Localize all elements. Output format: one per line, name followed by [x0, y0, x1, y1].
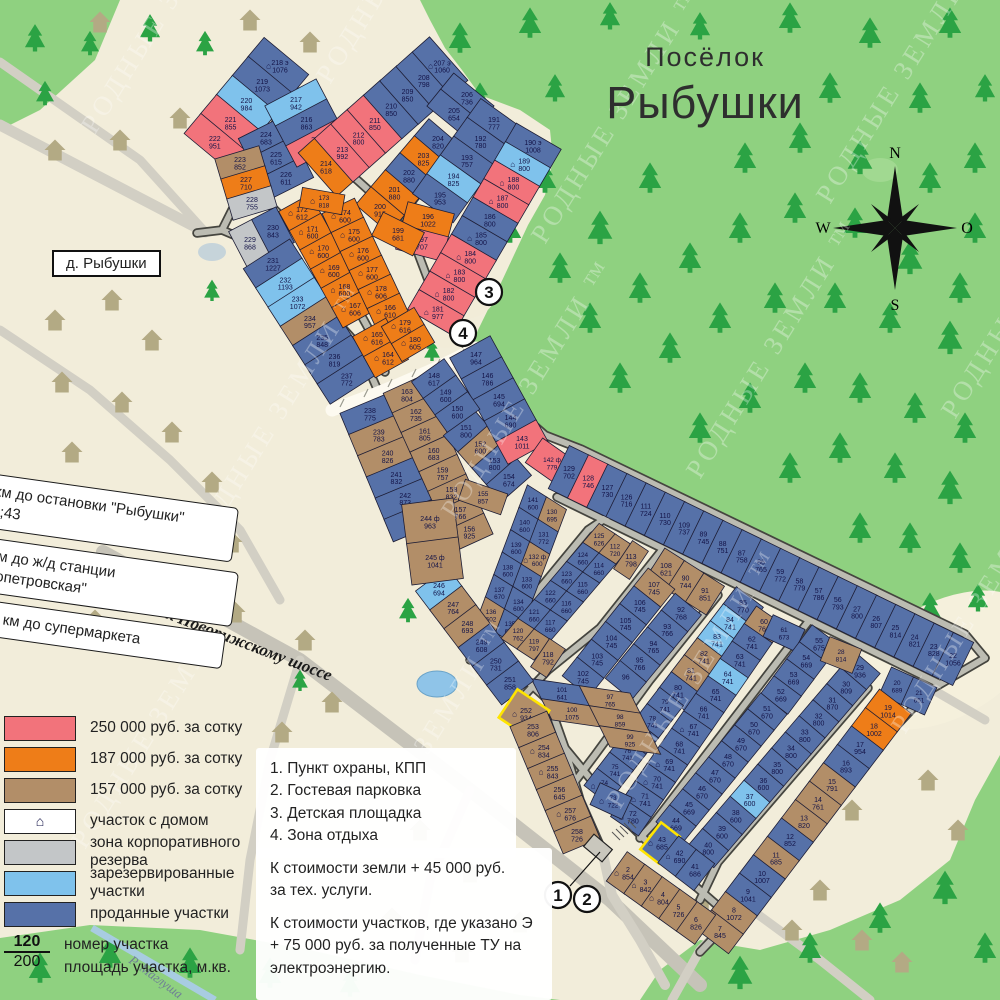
- svg-text:97: 97: [606, 694, 614, 701]
- svg-text:850: 850: [385, 111, 397, 118]
- svg-text:⌂: ⌂: [320, 266, 325, 275]
- svg-text:675: 675: [813, 645, 825, 652]
- svg-text:196: 196: [422, 214, 434, 221]
- svg-text:126: 126: [621, 494, 633, 501]
- svg-text:⌂: ⌂: [591, 782, 596, 791]
- svg-text:161: 161: [419, 428, 431, 435]
- plot-area-sample: 200: [4, 953, 50, 971]
- title-line1: Посёлок: [555, 42, 855, 73]
- svg-text:94: 94: [650, 641, 658, 648]
- svg-text:180: 180: [409, 337, 421, 344]
- svg-text:51: 51: [763, 706, 771, 713]
- svg-text:814: 814: [836, 656, 847, 663]
- svg-text:69: 69: [665, 759, 673, 766]
- svg-text:116: 116: [561, 601, 572, 608]
- svg-text:3: 3: [644, 880, 648, 887]
- svg-text:⌂: ⌂: [489, 197, 494, 206]
- svg-text:⌂: ⌂: [310, 197, 315, 206]
- svg-text:251: 251: [504, 677, 516, 684]
- svg-text:984: 984: [241, 105, 253, 112]
- svg-text:605: 605: [409, 344, 421, 351]
- svg-text:843: 843: [547, 773, 559, 780]
- svg-text:745: 745: [606, 643, 618, 650]
- svg-text:800: 800: [454, 277, 466, 284]
- svg-text:852: 852: [234, 164, 246, 171]
- svg-text:716: 716: [621, 501, 633, 508]
- svg-text:669: 669: [788, 679, 800, 686]
- svg-text:⌂: ⌂: [530, 747, 535, 756]
- poi-item-4: 4. Зона отдыха: [270, 825, 502, 847]
- svg-text:⌂: ⌂: [374, 354, 379, 363]
- svg-text:33: 33: [801, 730, 809, 737]
- svg-text:731: 731: [490, 666, 502, 673]
- village-label: д. Рыбушки: [52, 250, 161, 277]
- svg-text:757: 757: [461, 162, 473, 169]
- svg-text:954: 954: [854, 749, 866, 756]
- svg-text:219: 219: [256, 79, 268, 86]
- svg-text:600: 600: [440, 397, 452, 404]
- svg-text:606: 606: [375, 293, 387, 300]
- svg-text:1076: 1076: [272, 67, 288, 74]
- svg-text:⌂: ⌂: [428, 62, 433, 71]
- svg-text:660: 660: [561, 578, 572, 585]
- svg-text:670: 670: [494, 594, 505, 601]
- svg-text:60: 60: [760, 619, 768, 626]
- svg-text:741: 741: [688, 731, 700, 738]
- svg-text:148: 148: [428, 373, 440, 380]
- svg-text:6: 6: [694, 917, 698, 924]
- svg-text:674: 674: [503, 481, 515, 488]
- svg-text:600: 600: [744, 801, 756, 808]
- svg-text:108: 108: [660, 563, 672, 570]
- legend-swatch: [4, 840, 76, 865]
- svg-text:204: 204: [432, 136, 444, 143]
- svg-text:745: 745: [648, 589, 660, 596]
- svg-text:213: 213: [336, 147, 348, 154]
- svg-text:247: 247: [447, 602, 459, 609]
- svg-text:690: 690: [674, 858, 686, 865]
- svg-text:165: 165: [371, 332, 383, 339]
- svg-text:751: 751: [717, 548, 729, 555]
- svg-text:209: 209: [402, 89, 414, 96]
- svg-text:169: 169: [328, 265, 340, 272]
- svg-text:741: 741: [673, 749, 685, 756]
- svg-text:131: 131: [538, 532, 549, 539]
- svg-text:14: 14: [814, 797, 822, 804]
- svg-text:617: 617: [428, 380, 440, 387]
- svg-text:226: 226: [280, 172, 292, 179]
- svg-text:1072: 1072: [726, 915, 742, 922]
- legend-item-5: зона корпоративного резерва: [4, 840, 254, 864]
- svg-text:88: 88: [719, 541, 727, 548]
- svg-text:⌂: ⌂: [648, 839, 653, 848]
- svg-text:228: 228: [246, 197, 258, 204]
- svg-text:134: 134: [513, 599, 524, 606]
- svg-text:30: 30: [842, 681, 850, 688]
- svg-text:⌂: ⌂: [456, 253, 461, 262]
- svg-text:670: 670: [761, 713, 773, 720]
- svg-text:⌂: ⌂: [401, 339, 406, 348]
- svg-text:128: 128: [582, 476, 594, 483]
- legend-label: 157 000 руб. за сотку: [90, 781, 242, 799]
- svg-text:252: 252: [520, 708, 532, 715]
- svg-text:⌂: ⌂: [266, 62, 271, 71]
- svg-text:185: 185: [475, 233, 487, 240]
- svg-text:240: 240: [382, 451, 394, 458]
- svg-text:187: 187: [497, 196, 509, 203]
- svg-text:233: 233: [292, 297, 304, 304]
- svg-text:32: 32: [815, 714, 823, 721]
- svg-text:857: 857: [478, 498, 489, 505]
- svg-text:⌂: ⌂: [288, 209, 293, 218]
- svg-text:27: 27: [853, 606, 861, 613]
- svg-text:139: 139: [511, 542, 522, 549]
- svg-text:62: 62: [748, 637, 756, 644]
- svg-text:645: 645: [554, 794, 566, 801]
- svg-text:68: 68: [675, 741, 683, 748]
- svg-text:805: 805: [419, 436, 431, 443]
- svg-text:248: 248: [462, 621, 474, 628]
- svg-text:43: 43: [658, 837, 666, 844]
- svg-text:850: 850: [402, 96, 414, 103]
- svg-text:28: 28: [837, 649, 845, 656]
- svg-text:766: 766: [634, 665, 646, 672]
- svg-text:192: 192: [475, 136, 487, 143]
- svg-text:736: 736: [461, 99, 473, 106]
- svg-text:238: 238: [364, 408, 376, 415]
- svg-text:783: 783: [373, 437, 385, 444]
- svg-text:231: 231: [267, 258, 279, 265]
- legend-swatch: [4, 778, 76, 803]
- svg-text:50: 50: [750, 722, 758, 729]
- svg-text:163: 163: [401, 389, 413, 396]
- svg-text:141: 141: [528, 497, 539, 504]
- legend-item-2: 187 000 руб. за сотку: [4, 747, 254, 771]
- svg-text:⌂: ⌂: [556, 810, 561, 819]
- svg-text:1193: 1193: [278, 285, 293, 292]
- svg-text:225: 225: [270, 152, 282, 159]
- svg-text:⌂: ⌂: [299, 228, 304, 237]
- legend-item-7: проданные участки: [4, 902, 254, 926]
- svg-text:600: 600: [452, 413, 464, 420]
- svg-text:239: 239: [373, 429, 385, 436]
- svg-text:745: 745: [591, 661, 603, 668]
- svg-text:137: 137: [494, 587, 505, 594]
- svg-text:92: 92: [677, 607, 685, 614]
- svg-text:191: 191: [488, 117, 500, 124]
- svg-text:57: 57: [815, 588, 823, 595]
- svg-text:5: 5: [677, 905, 681, 912]
- svg-text:224: 224: [260, 132, 272, 139]
- svg-text:1022: 1022: [420, 221, 436, 228]
- svg-text:175: 175: [348, 229, 360, 236]
- svg-text:127: 127: [602, 485, 614, 492]
- svg-text:600: 600: [730, 817, 742, 824]
- svg-text:117: 117: [545, 620, 556, 627]
- svg-text:151: 151: [460, 425, 472, 432]
- svg-text:181: 181: [432, 307, 444, 314]
- svg-text:24: 24: [911, 635, 919, 642]
- svg-text:54: 54: [802, 655, 810, 662]
- svg-text:977: 977: [432, 314, 444, 321]
- svg-text:46: 46: [698, 786, 706, 793]
- svg-text:764: 764: [447, 609, 459, 616]
- svg-text:600: 600: [519, 527, 530, 534]
- svg-text:825: 825: [418, 160, 430, 167]
- svg-text:800: 800: [771, 769, 783, 776]
- svg-text:111: 111: [640, 504, 651, 511]
- svg-text:216: 216: [301, 117, 313, 124]
- svg-text:234: 234: [304, 316, 316, 323]
- svg-text:156: 156: [463, 526, 475, 533]
- svg-text:689: 689: [892, 687, 903, 694]
- svg-text:63: 63: [736, 654, 744, 661]
- svg-text:670: 670: [722, 761, 734, 768]
- svg-text:118: 118: [542, 652, 553, 659]
- poi-item-3: 3. Детская площадка: [270, 803, 502, 825]
- svg-text:⌂: ⌂: [435, 290, 440, 299]
- svg-text:45: 45: [685, 802, 693, 809]
- svg-text:600: 600: [348, 236, 360, 243]
- svg-text:600: 600: [307, 234, 319, 241]
- svg-text:⌂: ⌂: [510, 160, 515, 169]
- svg-text:1008: 1008: [525, 147, 541, 154]
- svg-text:16: 16: [842, 760, 850, 767]
- poi-item-1: 1. Пункт охраны, КПП: [270, 758, 502, 780]
- svg-text:818: 818: [319, 202, 330, 209]
- svg-text:201: 201: [389, 187, 401, 194]
- svg-text:96: 96: [622, 674, 630, 681]
- svg-text:208: 208: [418, 75, 430, 82]
- svg-text:600: 600: [532, 561, 543, 568]
- svg-text:793: 793: [832, 604, 844, 611]
- svg-text:65: 65: [712, 689, 720, 696]
- marker-3[interactable]: 3: [476, 279, 502, 305]
- svg-text:217: 217: [290, 97, 302, 104]
- svg-text:241: 241: [391, 472, 403, 479]
- svg-text:843: 843: [267, 232, 279, 239]
- svg-text:37: 37: [746, 794, 754, 801]
- svg-text:702: 702: [563, 473, 575, 480]
- svg-text:797: 797: [529, 646, 540, 653]
- svg-text:15: 15: [828, 779, 836, 786]
- svg-text:⌂: ⌂: [363, 334, 368, 343]
- svg-text:10: 10: [758, 871, 766, 878]
- legend-label: участок с домом: [90, 812, 208, 830]
- svg-text:600: 600: [328, 272, 340, 279]
- compass-s: S: [891, 297, 900, 314]
- svg-text:166: 166: [384, 305, 396, 312]
- svg-text:105: 105: [620, 618, 632, 625]
- svg-text:89: 89: [700, 532, 708, 539]
- svg-text:91: 91: [701, 588, 709, 595]
- svg-text:1060: 1060: [434, 68, 450, 75]
- svg-text:1011: 1011: [514, 443, 529, 450]
- svg-text:160: 160: [428, 448, 440, 455]
- svg-text:686: 686: [689, 871, 701, 878]
- poi-item-2: 2. Гостевая парковка: [270, 780, 502, 802]
- svg-text:745: 745: [577, 678, 589, 685]
- legend-swatch: [4, 871, 76, 896]
- svg-text:600: 600: [513, 606, 524, 613]
- svg-text:612: 612: [296, 214, 308, 221]
- svg-text:53: 53: [790, 672, 798, 679]
- svg-text:670: 670: [709, 777, 721, 784]
- svg-text:726: 726: [571, 836, 583, 843]
- svg-text:612: 612: [382, 359, 394, 366]
- svg-text:255: 255: [547, 766, 559, 773]
- svg-text:600: 600: [317, 253, 329, 260]
- svg-text:600: 600: [716, 833, 728, 840]
- svg-text:804: 804: [401, 396, 413, 403]
- svg-text:221: 221: [225, 117, 237, 124]
- svg-text:38: 38: [732, 810, 740, 817]
- svg-text:755: 755: [246, 204, 258, 211]
- svg-text:237: 237: [341, 373, 353, 380]
- svg-text:55: 55: [815, 638, 823, 645]
- svg-text:210: 210: [385, 104, 397, 111]
- svg-text:183: 183: [454, 270, 466, 277]
- legend-item-4: ⌂участок с домом: [4, 809, 254, 833]
- svg-text:1073: 1073: [254, 86, 270, 93]
- svg-text:121: 121: [529, 609, 540, 616]
- svg-text:164: 164: [382, 352, 394, 359]
- plot-number-sample: 120: [4, 933, 50, 953]
- svg-text:820: 820: [432, 143, 444, 150]
- svg-text:804: 804: [657, 899, 669, 906]
- svg-text:626: 626: [594, 540, 605, 547]
- svg-text:162: 162: [410, 409, 422, 416]
- svg-text:154: 154: [503, 474, 515, 481]
- svg-text:244 ф: 244 ф: [420, 516, 440, 523]
- legend-label: 187 000 руб. за сотку: [90, 750, 242, 768]
- svg-text:66: 66: [700, 706, 708, 713]
- compass-e: O: [961, 220, 973, 237]
- svg-text:36: 36: [760, 778, 768, 785]
- svg-text:779: 779: [794, 586, 806, 593]
- svg-text:7: 7: [718, 926, 722, 933]
- svg-text:253: 253: [527, 724, 539, 731]
- svg-text:745: 745: [634, 607, 646, 614]
- svg-text:660: 660: [545, 597, 556, 604]
- svg-text:212: 212: [353, 132, 365, 139]
- svg-text:925: 925: [463, 534, 475, 541]
- svg-text:67: 67: [690, 724, 698, 731]
- svg-text:29: 29: [856, 665, 864, 672]
- svg-text:757: 757: [437, 475, 449, 482]
- svg-text:109: 109: [678, 522, 690, 529]
- svg-text:246: 246: [433, 583, 445, 590]
- svg-text:⌂: ⌂: [666, 852, 671, 861]
- svg-text:953: 953: [434, 200, 446, 207]
- svg-text:182: 182: [443, 288, 455, 295]
- svg-text:669: 669: [683, 809, 695, 816]
- svg-text:120: 120: [513, 628, 524, 635]
- svg-text:611: 611: [280, 179, 291, 186]
- svg-text:257: 257: [564, 808, 576, 815]
- legend-swatch: [4, 902, 76, 927]
- svg-text:660: 660: [561, 608, 572, 615]
- svg-text:806: 806: [527, 731, 539, 738]
- svg-text:660: 660: [577, 589, 588, 596]
- svg-text:170: 170: [317, 246, 329, 253]
- svg-text:103: 103: [591, 653, 603, 660]
- svg-text:142 ф: 142 ф: [543, 457, 561, 464]
- svg-text:202: 202: [403, 170, 415, 177]
- plot-245ф[interactable]: 245 ф1041: [407, 537, 464, 585]
- svg-text:745: 745: [620, 625, 632, 632]
- svg-text:741: 741: [698, 714, 710, 721]
- svg-text:95: 95: [636, 658, 644, 665]
- fee-note-1: К стоимости земли + 45 000 руб. за тех. …: [270, 858, 538, 903]
- svg-text:670: 670: [696, 793, 708, 800]
- svg-text:964: 964: [470, 359, 482, 366]
- svg-text:775: 775: [364, 415, 376, 422]
- svg-text:124: 124: [577, 552, 588, 559]
- svg-text:676: 676: [564, 815, 576, 822]
- svg-text:107: 107: [648, 582, 660, 589]
- svg-text:42: 42: [676, 851, 684, 858]
- svg-text:138: 138: [502, 564, 513, 571]
- svg-text:143: 143: [516, 436, 528, 443]
- svg-text:741: 741: [639, 801, 651, 808]
- svg-text:621: 621: [660, 570, 672, 577]
- svg-text:744: 744: [680, 583, 692, 590]
- marker-2[interactable]: 2: [574, 886, 600, 912]
- fee-note-2: К стоимости участков, где указано Э + 75…: [270, 913, 538, 980]
- svg-text:746: 746: [582, 483, 594, 490]
- svg-text:845: 845: [714, 933, 726, 940]
- svg-text:772: 772: [341, 381, 353, 388]
- svg-text:942: 942: [290, 104, 302, 111]
- svg-text:119: 119: [529, 639, 540, 646]
- svg-text:220: 220: [241, 98, 253, 105]
- svg-text:600: 600: [758, 785, 770, 792]
- svg-text:681: 681: [392, 235, 404, 242]
- svg-text:1007: 1007: [754, 878, 770, 885]
- legend-swatch: [4, 716, 76, 741]
- svg-text:8: 8: [732, 908, 736, 915]
- svg-text:786: 786: [813, 595, 825, 602]
- svg-text:735: 735: [410, 416, 422, 423]
- svg-text:670: 670: [748, 729, 760, 736]
- svg-text:683: 683: [428, 455, 440, 462]
- svg-text:12: 12: [786, 834, 794, 841]
- svg-text:821: 821: [909, 642, 921, 649]
- svg-text:26: 26: [872, 616, 880, 623]
- svg-text:792: 792: [542, 659, 554, 666]
- svg-text:868: 868: [244, 244, 256, 251]
- svg-text:⌂: ⌂: [424, 308, 429, 317]
- svg-text:171: 171: [307, 226, 319, 233]
- legend-item-6: зарезервированные участки: [4, 871, 254, 895]
- svg-text:242: 242: [399, 493, 411, 500]
- svg-text:229: 229: [244, 237, 256, 244]
- svg-text:52: 52: [777, 689, 785, 696]
- svg-text:⌂: ⌂: [445, 271, 450, 280]
- svg-text:800: 800: [464, 258, 476, 265]
- svg-text:188: 188: [508, 177, 520, 184]
- svg-text:61: 61: [780, 627, 788, 634]
- svg-text:724: 724: [640, 511, 652, 518]
- svg-text:798: 798: [418, 82, 430, 89]
- svg-text:870: 870: [827, 705, 839, 712]
- svg-text:⌂: ⌂: [512, 710, 517, 719]
- marker-4[interactable]: 4: [450, 320, 476, 346]
- svg-text:177: 177: [366, 267, 378, 274]
- svg-text:⌂: ⌂: [349, 250, 354, 259]
- svg-text:⌂: ⌂: [340, 231, 345, 240]
